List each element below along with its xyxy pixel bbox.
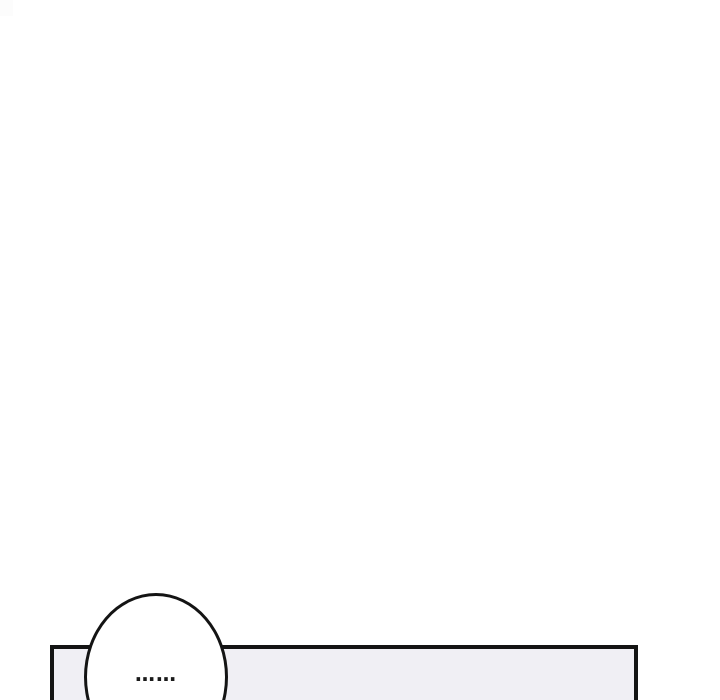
- corner-artifact: [0, 0, 13, 16]
- speech-bubble-text: ……: [135, 664, 177, 684]
- speech-bubble: ……: [84, 593, 228, 700]
- comic-page: ……: [0, 0, 720, 700]
